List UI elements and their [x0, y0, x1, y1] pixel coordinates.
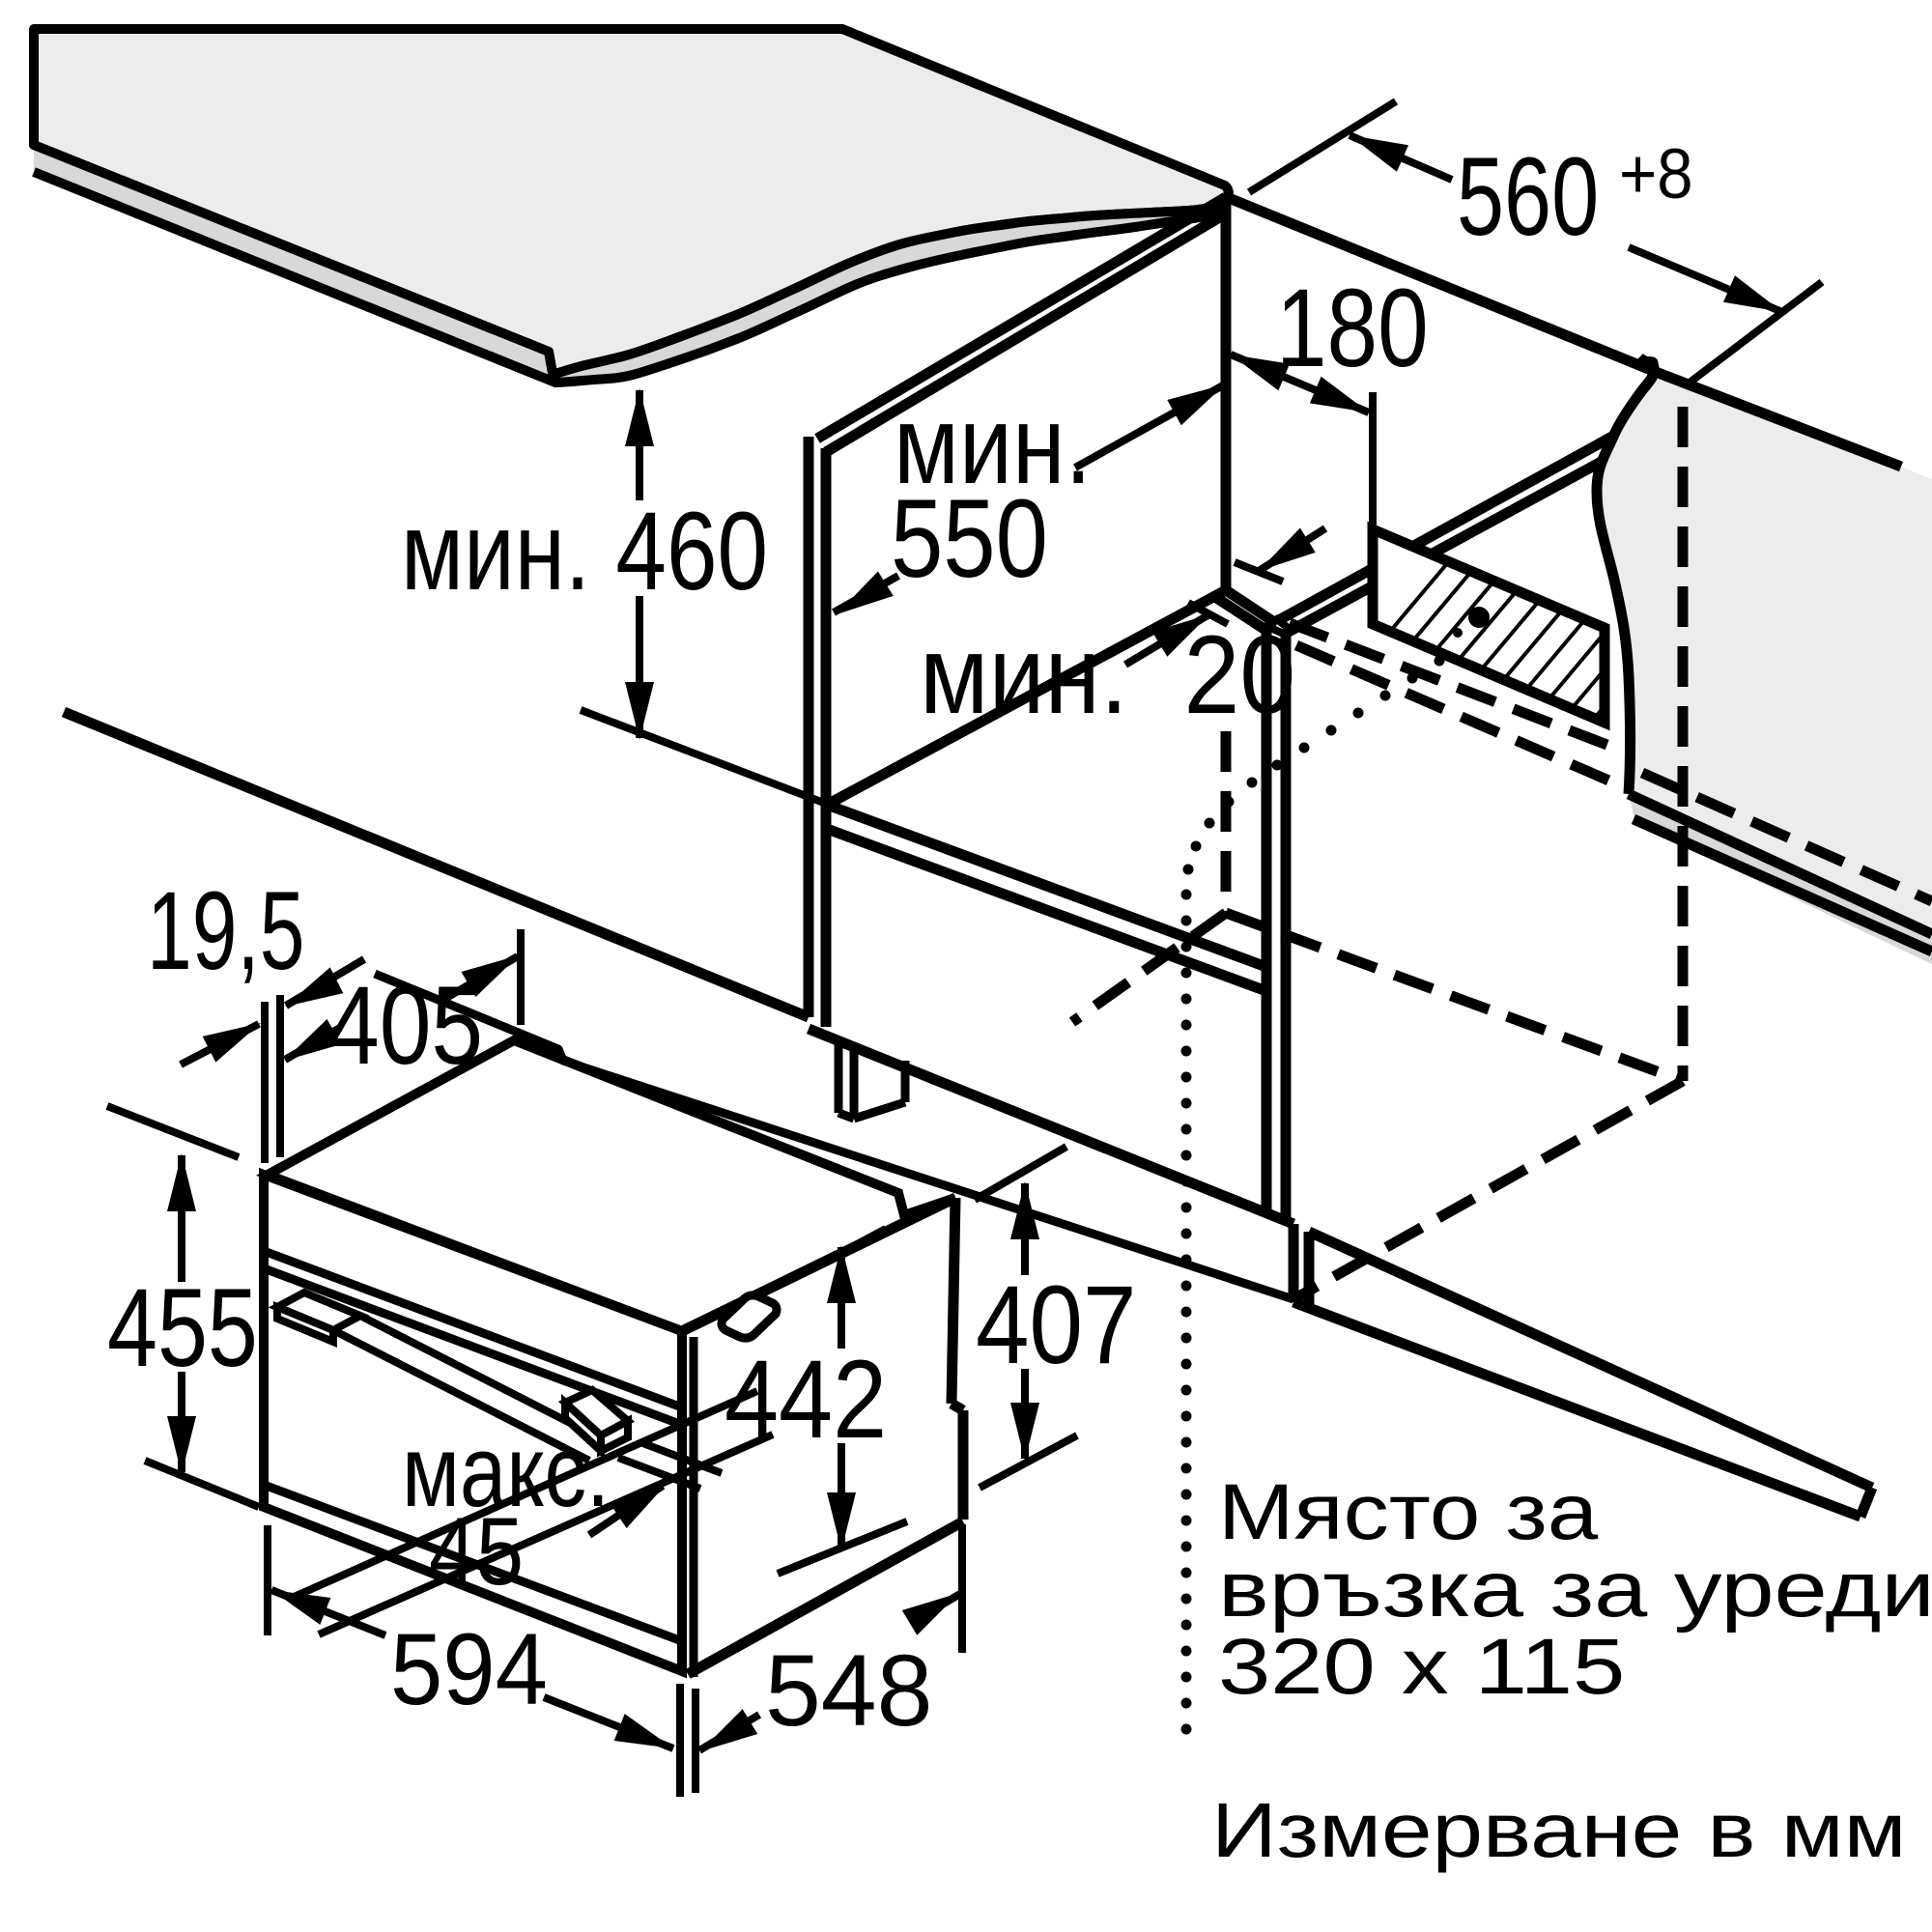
svg-text:455: 455: [107, 1266, 258, 1390]
svg-text:320 x 115: 320 x 115: [1218, 1622, 1625, 1711]
svg-text:+8: +8: [1619, 134, 1693, 213]
svg-text:180: 180: [1276, 267, 1429, 390]
svg-text:мин. 20: мин. 20: [920, 613, 1295, 737]
svg-text:407: 407: [976, 1263, 1136, 1386]
svg-text:560: 560: [1457, 134, 1599, 259]
svg-text:Място за: Място за: [1218, 1467, 1599, 1556]
svg-text:връзка за уреди: връзка за уреди: [1218, 1546, 1932, 1634]
svg-text:550: 550: [891, 475, 1048, 600]
svg-text:Измерване в мм: Измерване в мм: [1211, 1787, 1907, 1874]
svg-text:594: 594: [390, 1613, 548, 1726]
svg-text:405: 405: [327, 963, 483, 1088]
svg-text:19,5: 19,5: [147, 869, 304, 993]
svg-text:мин. 460: мин. 460: [401, 490, 768, 613]
svg-text:548: 548: [765, 1634, 932, 1748]
